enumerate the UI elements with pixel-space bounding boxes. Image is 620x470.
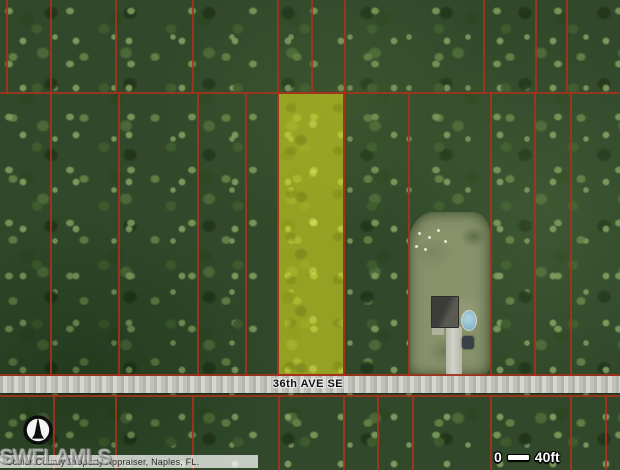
road-label: 36th AVE SE	[273, 378, 343, 390]
parcel-line-vertical	[490, 395, 492, 470]
debris-dot	[444, 240, 447, 243]
parcel-line-vertical	[534, 92, 536, 375]
parcel-line-vertical	[412, 395, 414, 470]
parcel-line-vertical	[570, 92, 572, 375]
parcel-line-vertical	[50, 0, 52, 92]
parcel-line-vertical	[311, 0, 313, 92]
debris-dot	[428, 236, 431, 239]
parcel-line-vertical	[535, 0, 537, 92]
parcel-line-vertical	[245, 92, 247, 375]
parcel-line-vertical	[278, 395, 280, 470]
parcel-line-vertical	[344, 0, 346, 92]
parcel-line-vertical	[377, 395, 379, 470]
parcel-line-vertical	[118, 92, 120, 375]
parcel-line-horizontal	[0, 395, 620, 397]
parcel-line-vertical	[570, 395, 572, 470]
scale-bar-segment	[507, 454, 530, 461]
scale-start-label: 0	[494, 449, 502, 465]
parcel-line-vertical	[605, 395, 607, 470]
parked-vehicle	[462, 336, 474, 349]
parcel-line-vertical	[483, 0, 485, 92]
house-pad	[432, 327, 444, 335]
house-roof	[431, 296, 459, 328]
pool	[461, 310, 477, 331]
scale-bar: 0 40ft	[494, 449, 560, 465]
debris-dot	[437, 229, 440, 232]
parcel-line-vertical	[408, 92, 410, 375]
debris-dot	[418, 232, 421, 235]
north-compass-icon	[19, 411, 57, 454]
highlighted-parcel[interactable]	[277, 92, 345, 376]
parcel-line-vertical	[6, 0, 8, 92]
compass-svg	[19, 411, 57, 449]
debris-dot	[424, 248, 427, 251]
scale-end-label: 40ft	[535, 449, 560, 465]
parcel-line-vertical	[343, 395, 345, 470]
parcel-line-vertical	[277, 0, 279, 92]
parcel-line-vertical	[115, 0, 117, 92]
parcel-line-vertical	[192, 0, 194, 92]
parcel-line-vertical	[566, 0, 568, 92]
parcel-line-vertical	[490, 92, 492, 375]
parcel-line-vertical	[197, 92, 199, 375]
aerial-parcel-map[interactable]: 36th AVE SE Collier County Property Appr…	[0, 0, 620, 470]
debris-dot	[415, 245, 418, 248]
parcel-line-vertical	[50, 92, 52, 375]
